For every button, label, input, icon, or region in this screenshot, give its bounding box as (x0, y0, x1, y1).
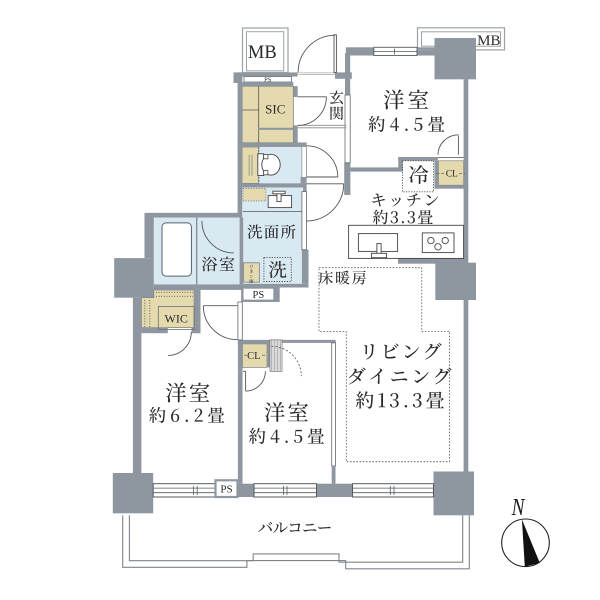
svg-text:PS: PS (253, 290, 265, 301)
svg-text:N: N (511, 494, 526, 521)
svg-text:CL: CL (247, 351, 260, 362)
svg-text:WIC: WIC (165, 312, 188, 326)
svg-text:MB: MB (248, 43, 277, 63)
svg-text:SIC: SIC (265, 101, 285, 116)
svg-text:MB: MB (477, 33, 500, 49)
svg-text:CL: CL (446, 170, 458, 180)
svg-text:PS: PS (220, 484, 232, 496)
